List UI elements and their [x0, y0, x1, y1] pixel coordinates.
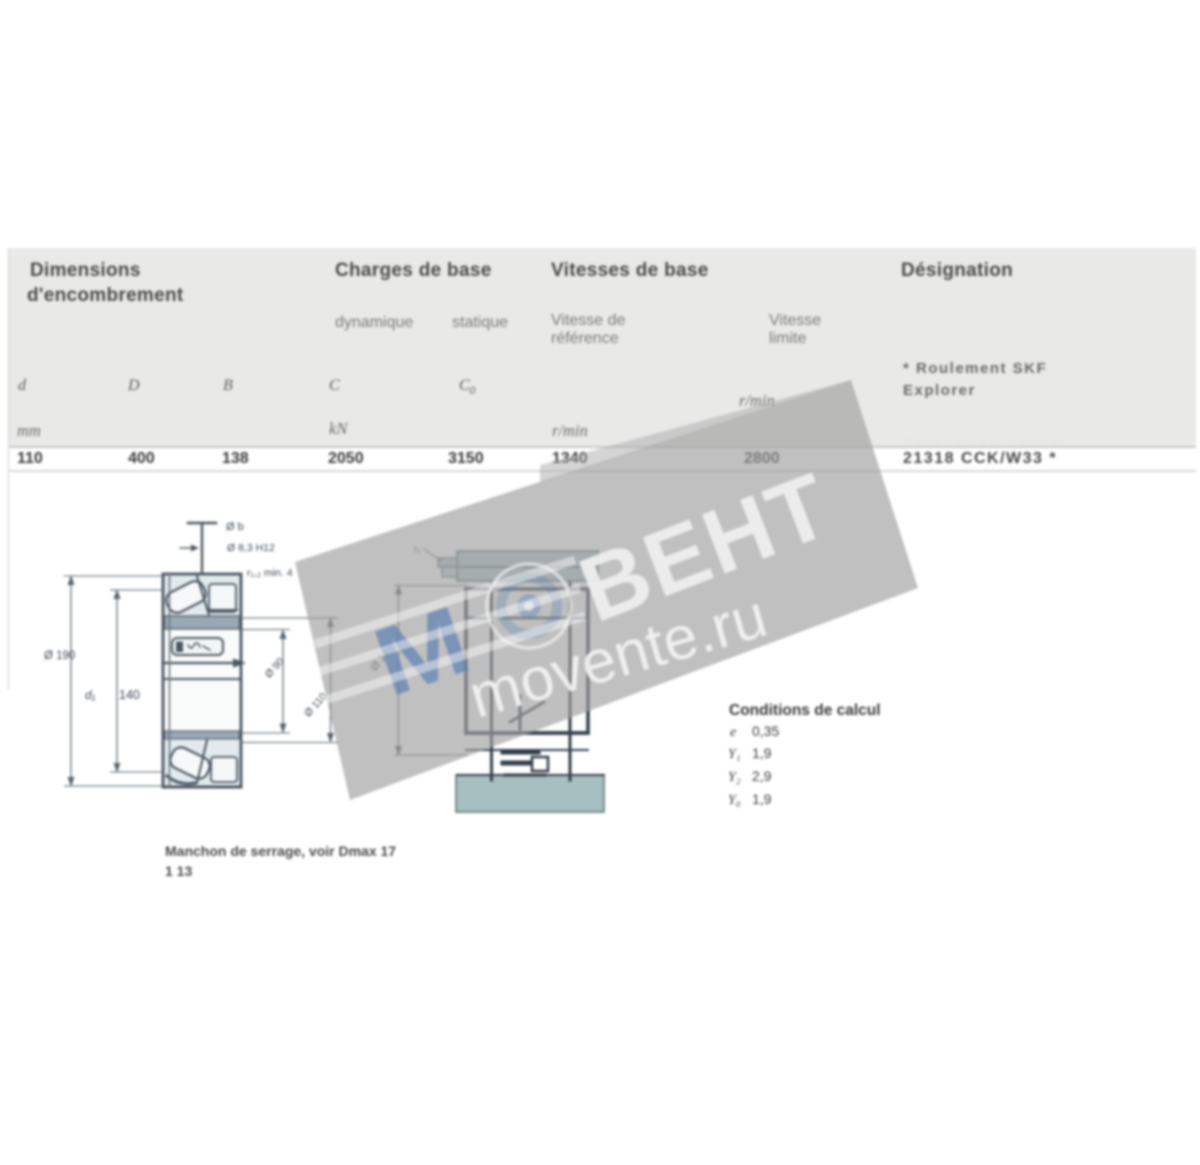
svg-text:0,35: 0,35 [752, 723, 779, 739]
svg-text:r₁,₂ min. 4: r₁,₂ min. 4 [247, 567, 293, 579]
svg-text:140: 140 [119, 688, 140, 702]
svg-text:Ø 190: Ø 190 [44, 650, 75, 662]
svg-text:Y₁: Y₁ [728, 747, 741, 762]
svg-text:1 13: 1 13 [165, 863, 192, 879]
svg-text:2,9: 2,9 [752, 768, 772, 784]
svg-text:1,9: 1,9 [752, 791, 772, 807]
svg-text:Conditions de calcul: Conditions de calcul [729, 702, 881, 719]
svg-text:Y₀: Y₀ [728, 793, 741, 808]
svg-text:Ø 8,3 H12: Ø 8,3 H12 [227, 542, 275, 554]
svg-text:1,9: 1,9 [752, 745, 772, 761]
svg-text:Manchon de serrage, voir Dmax: Manchon de serrage, voir Dmax 17 [165, 843, 396, 859]
svg-text:e: e [730, 725, 736, 740]
svg-text:Y₂: Y₂ [728, 770, 741, 785]
svg-text:Ø 110: Ø 110 [302, 691, 330, 720]
svg-text:Ø b: Ø b [226, 521, 244, 533]
svg-text:d₁: d₁ [85, 688, 96, 702]
